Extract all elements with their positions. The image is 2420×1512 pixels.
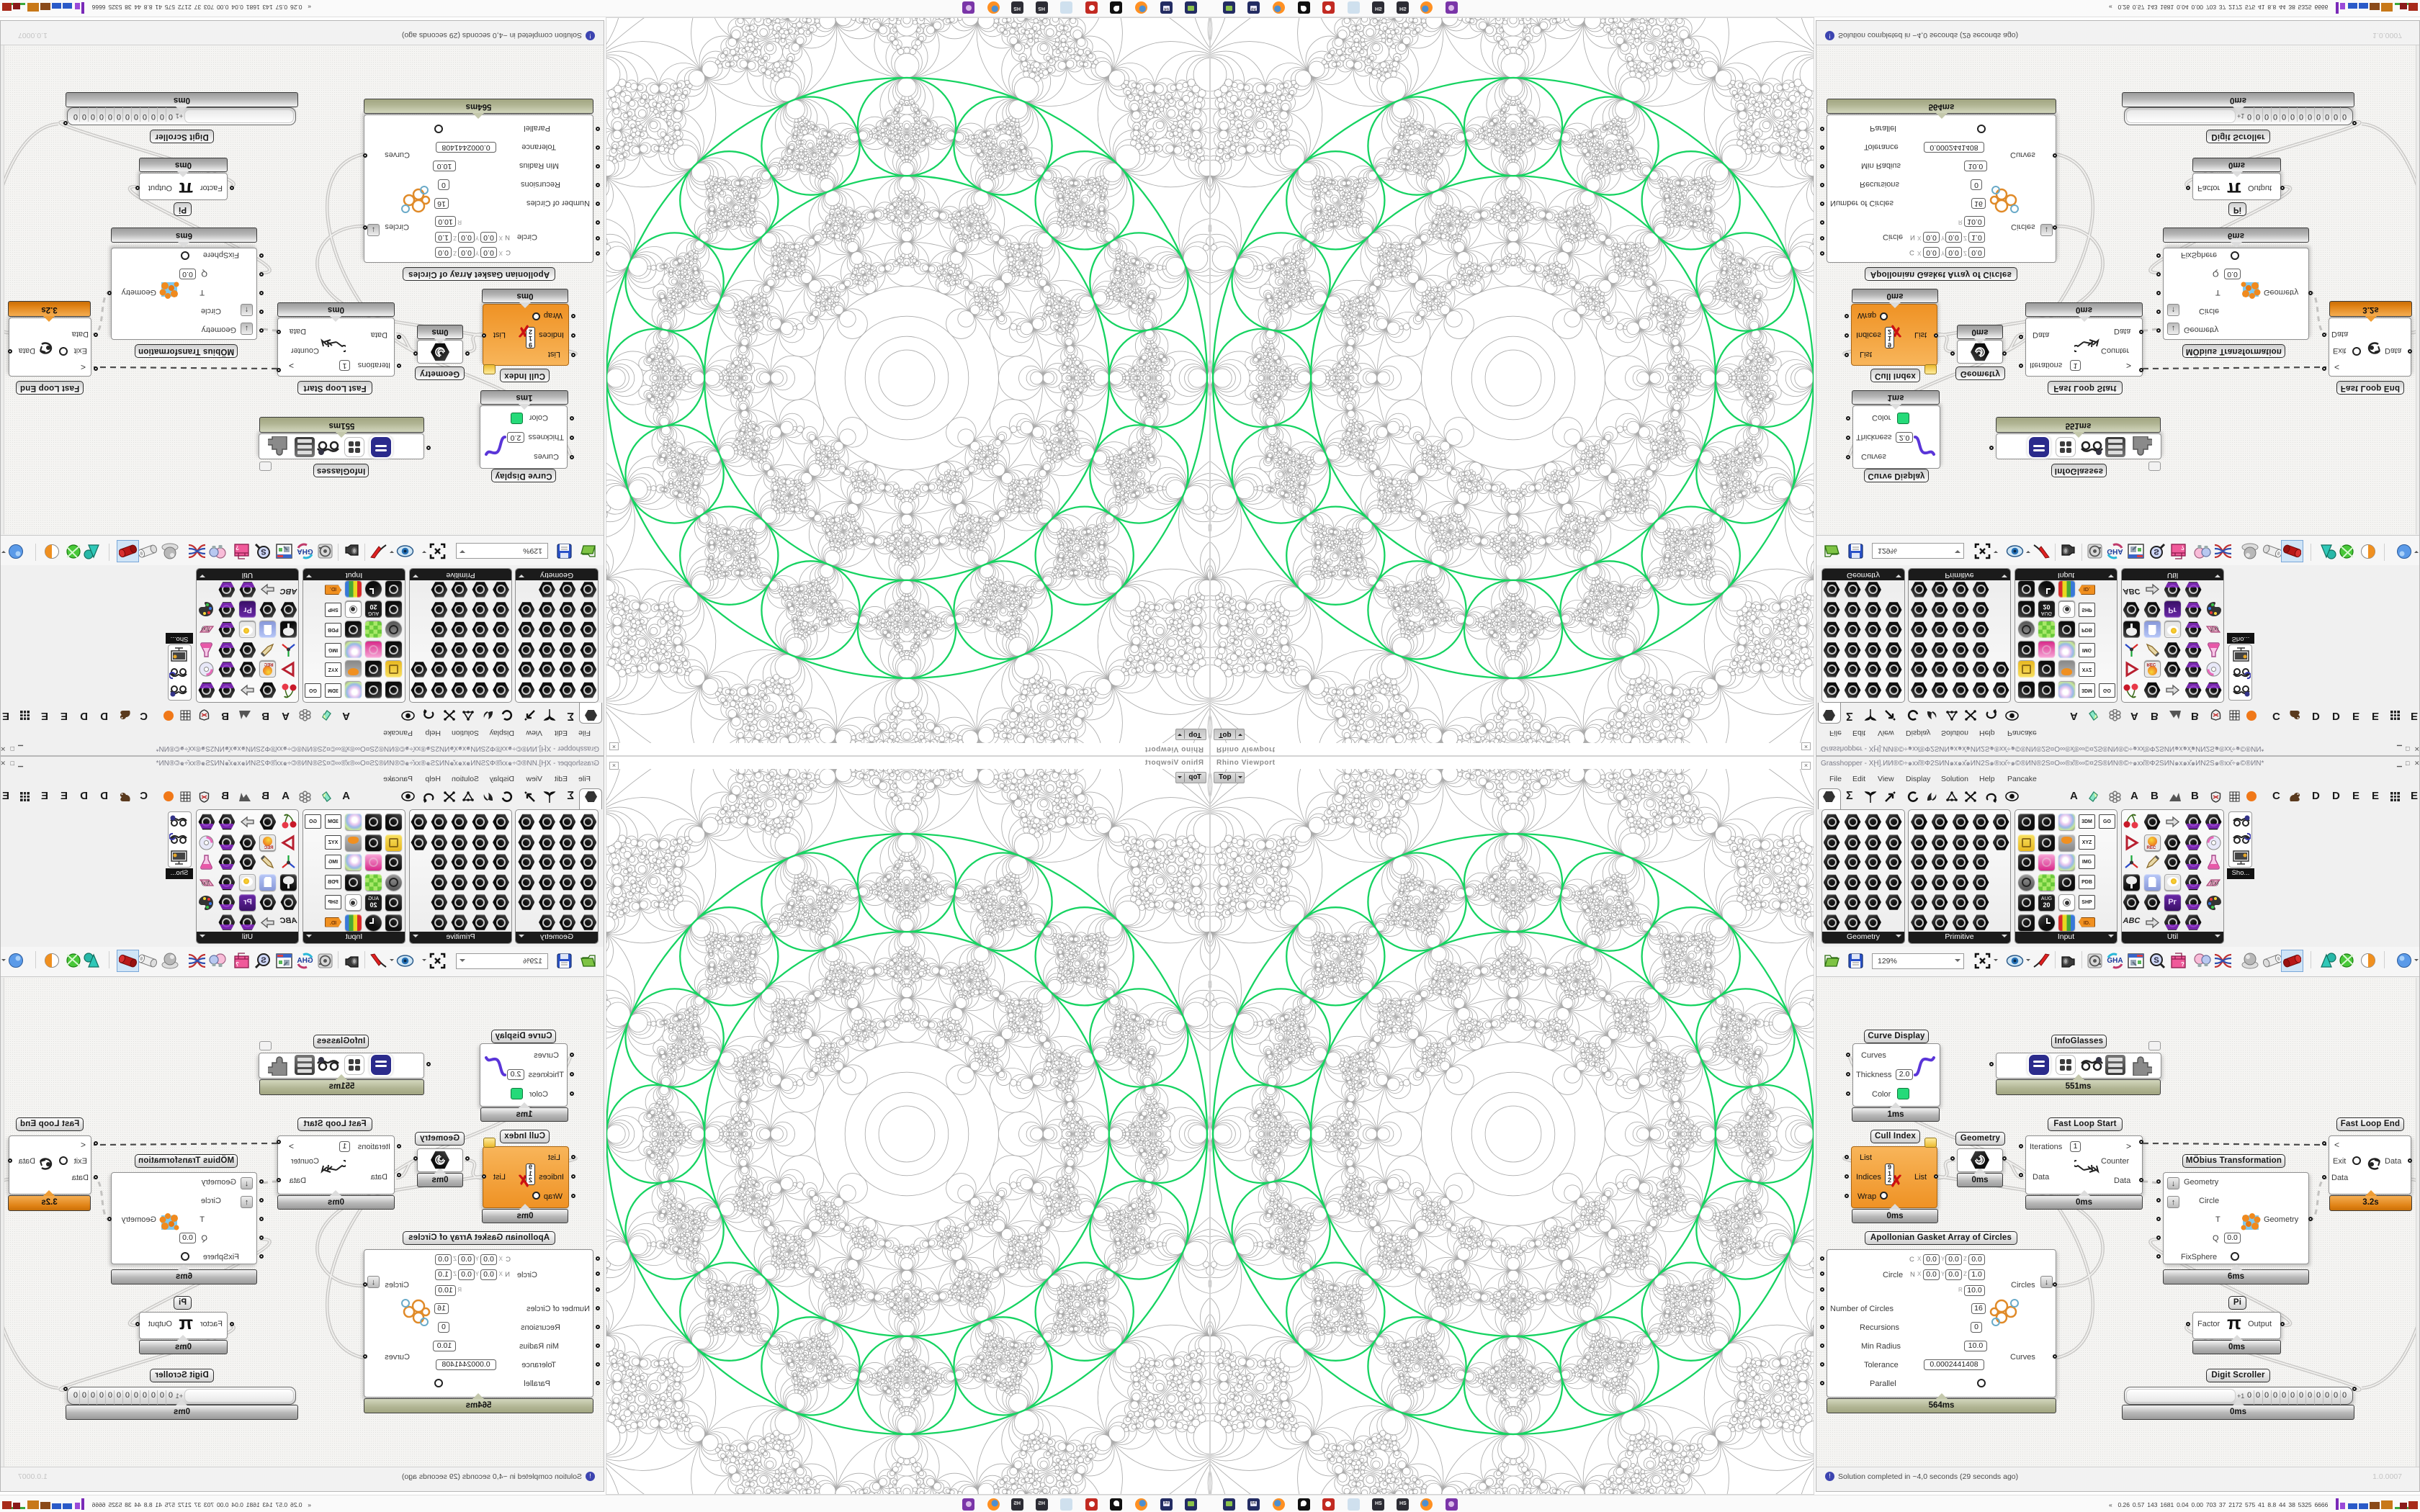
svg-text:S: S <box>2154 547 2159 556</box>
svg-text:f(x): f(x) <box>202 880 210 886</box>
svg-text:?: ? <box>2181 961 2184 968</box>
svg-text:f(x): f(x) <box>202 626 210 632</box>
svg-text:S: S <box>261 956 266 965</box>
svg-text:f(x): f(x) <box>2210 880 2219 886</box>
svg-text:f(x): f(x) <box>2210 626 2219 632</box>
svg-text:S: S <box>2154 956 2159 965</box>
svg-text:?: ? <box>236 961 239 968</box>
svg-text:S: S <box>261 547 266 556</box>
svg-text:?: ? <box>236 544 239 551</box>
svg-text:?: ? <box>2181 544 2184 551</box>
